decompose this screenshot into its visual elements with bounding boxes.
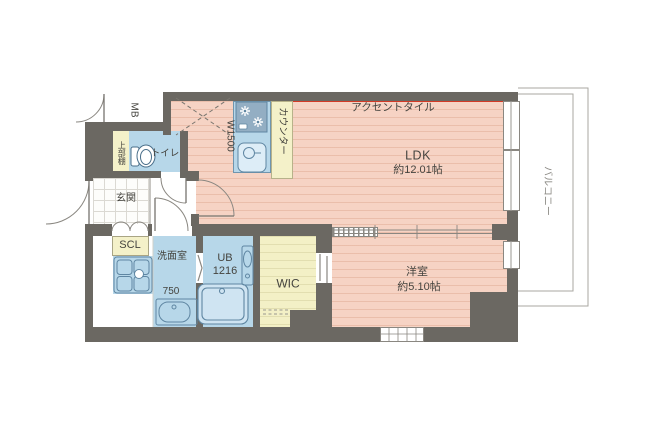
sink-icon: [238, 143, 266, 172]
balcony-outer-line: [518, 88, 588, 306]
bath-folding-door: [198, 255, 202, 281]
washer-pan-icon: [114, 257, 152, 293]
stove-icon: [236, 102, 267, 132]
floor-plan: MB アクセントタイル W1500 カウンター 上部棚 トイレ 玄関 SCL 洗…: [0, 0, 652, 435]
accent-tile-label: アクセントタイル: [351, 102, 434, 113]
wic-label: WIC: [276, 278, 299, 291]
scl-bifold-doors: [112, 222, 148, 231]
sliding-track: [332, 230, 492, 234]
ldk-size-label: 約12.01帖: [393, 165, 443, 177]
bath-basin-icon: [242, 246, 253, 285]
sliding-track-ticks: [375, 225, 457, 239]
refrigerator-space-x: [176, 98, 230, 135]
wic-hanger-rod: [263, 310, 288, 314]
washer-pan-size-label: 750: [163, 287, 180, 298]
washroom-label: 洗面室: [157, 252, 187, 263]
mb-door-arc: [76, 94, 104, 122]
fixtures-overlay: [0, 0, 652, 435]
balcony-label: バルコニー: [541, 166, 552, 216]
wic-sliding-door: [320, 254, 327, 283]
ldk-label: LDK: [405, 149, 431, 162]
genkan-label: 玄関: [116, 194, 136, 205]
vanity-icon: [156, 299, 197, 325]
counter-label: カウンター: [277, 107, 287, 155]
window-grid: [380, 328, 424, 342]
western-room-label: 洋室: [406, 267, 428, 279]
entrance-door-arc: [46, 181, 89, 224]
kitchen-width-label: W1500: [224, 120, 235, 152]
ldk-door-arc: [198, 180, 234, 216]
unit-bath-label: UB: [217, 253, 232, 265]
western-room-size-label: 約5.10帖: [397, 282, 440, 294]
bathtub-icon: [198, 284, 248, 324]
toilet-label: トイレ: [151, 149, 180, 159]
scl-label: SCL: [119, 240, 140, 252]
meter-box-label: MB: [128, 103, 139, 118]
unit-bath-size-label: 1216: [213, 266, 237, 278]
upper-shelf-label: 上部棚: [117, 141, 125, 165]
